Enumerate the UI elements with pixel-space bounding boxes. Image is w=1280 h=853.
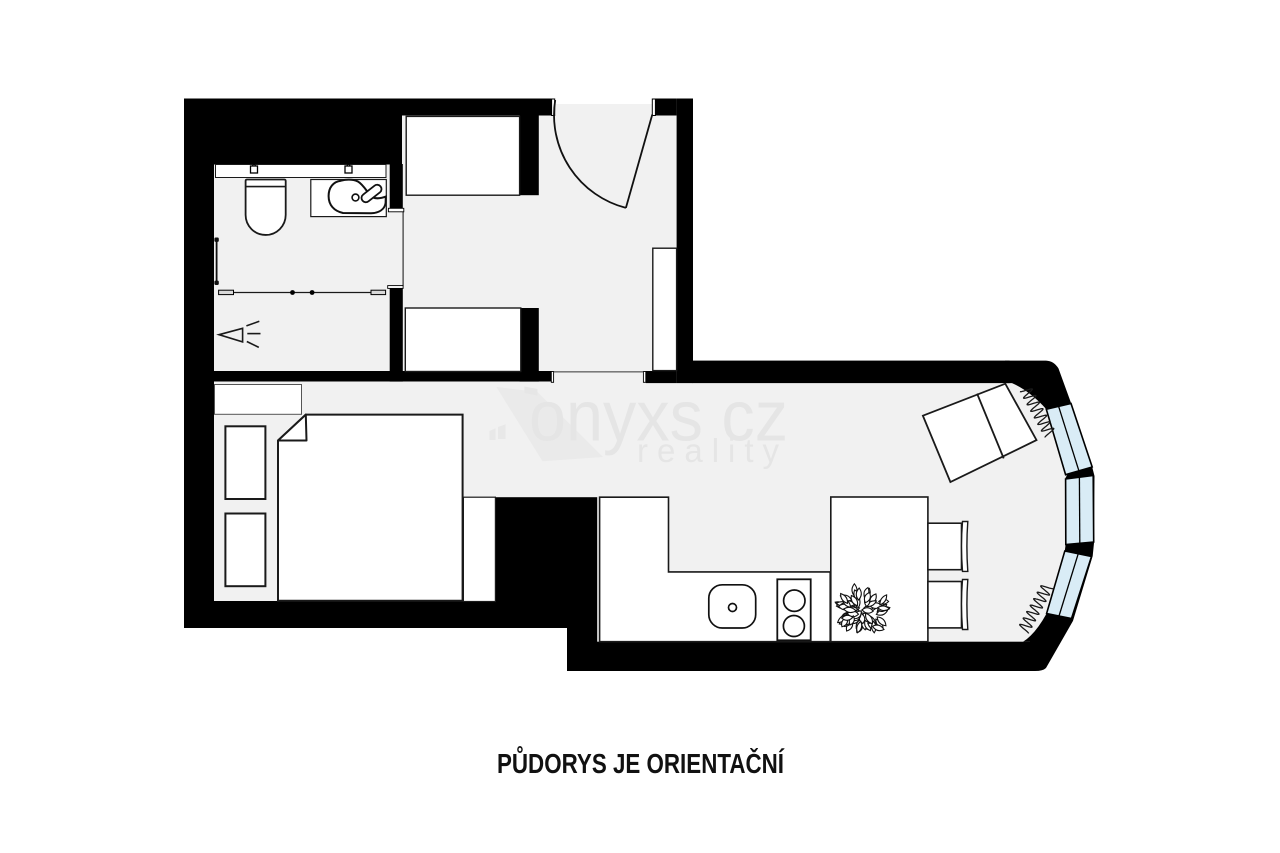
svg-text:reality: reality [637,432,788,469]
svg-text:PŮDORYS JE ORIENTAČNÍ: PŮDORYS JE ORIENTAČNÍ [497,746,785,779]
